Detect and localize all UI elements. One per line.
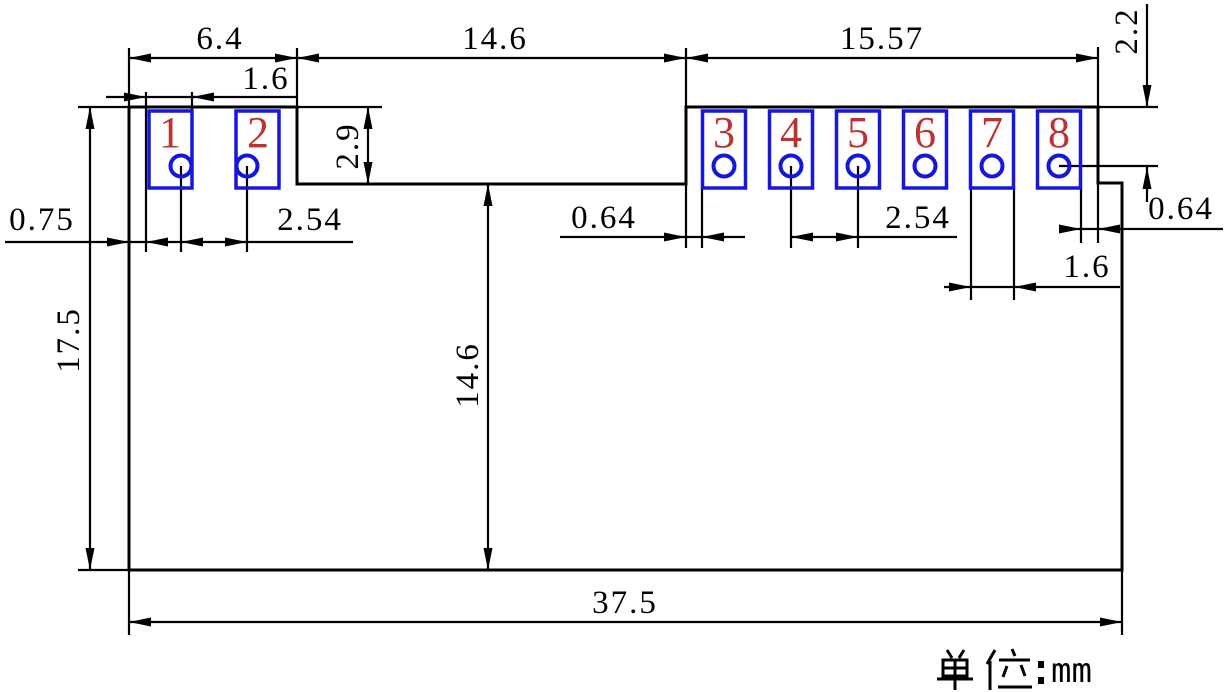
pin-hole [915, 156, 936, 177]
pin-number-2: 2 [247, 108, 269, 157]
dimension-drawing: 1 2 3 4 5 6 7 8 6.4 1.6 14.6 15.57 2.2 2… [0, 0, 1225, 692]
extension-lines [5, 4, 1223, 635]
dim-overall-height: 17.5 [51, 307, 87, 373]
dim-right-pad-width: 1.6 [1063, 249, 1110, 285]
dim-right-pin-pitch: 2.54 [885, 200, 951, 236]
dim-top-left-span: 6.4 [196, 21, 243, 57]
dim-pin-center-offset: 2.2 [1109, 7, 1145, 54]
pin-number-8: 8 [1048, 108, 1070, 157]
dim-top-right-span: 15.57 [840, 21, 924, 57]
dimension-texts: 6.4 1.6 14.6 15.57 2.2 2.9 0.75 2.54 0.6… [9, 7, 1214, 621]
dimension-lines [5, 4, 1223, 635]
pin-number-1: 1 [159, 108, 181, 157]
pin-number-6: 6 [914, 108, 936, 157]
pin-number-5: 5 [847, 108, 869, 157]
pin-number-4: 4 [780, 108, 802, 157]
unit-label-text: 单位： [935, 653, 1037, 692]
dim-body-to-pad3-gap: 0.64 [571, 200, 637, 236]
pin-hole [982, 156, 1003, 177]
unit-value: mm [1051, 651, 1092, 691]
dim-edge-to-pad-gap: 0.75 [9, 202, 75, 238]
dim-left-pin-pitch: 2.54 [277, 202, 343, 238]
dim-top-middle-span: 14.6 [462, 21, 528, 57]
dim-lower-body-height: 14.6 [450, 342, 486, 408]
dim-notch-depth: 2.9 [330, 122, 366, 169]
pin-number-7: 7 [981, 108, 1003, 157]
pin-hole [714, 156, 735, 177]
dim-left-pad-width: 1.6 [242, 61, 289, 97]
dim-pad8-to-edge-gap: 0.64 [1148, 191, 1214, 227]
unit-note: 单位： mm [935, 649, 1092, 692]
pads [149, 111, 1081, 188]
dim-overall-width: 37.5 [592, 585, 658, 621]
pin-number-3: 3 [713, 108, 735, 157]
